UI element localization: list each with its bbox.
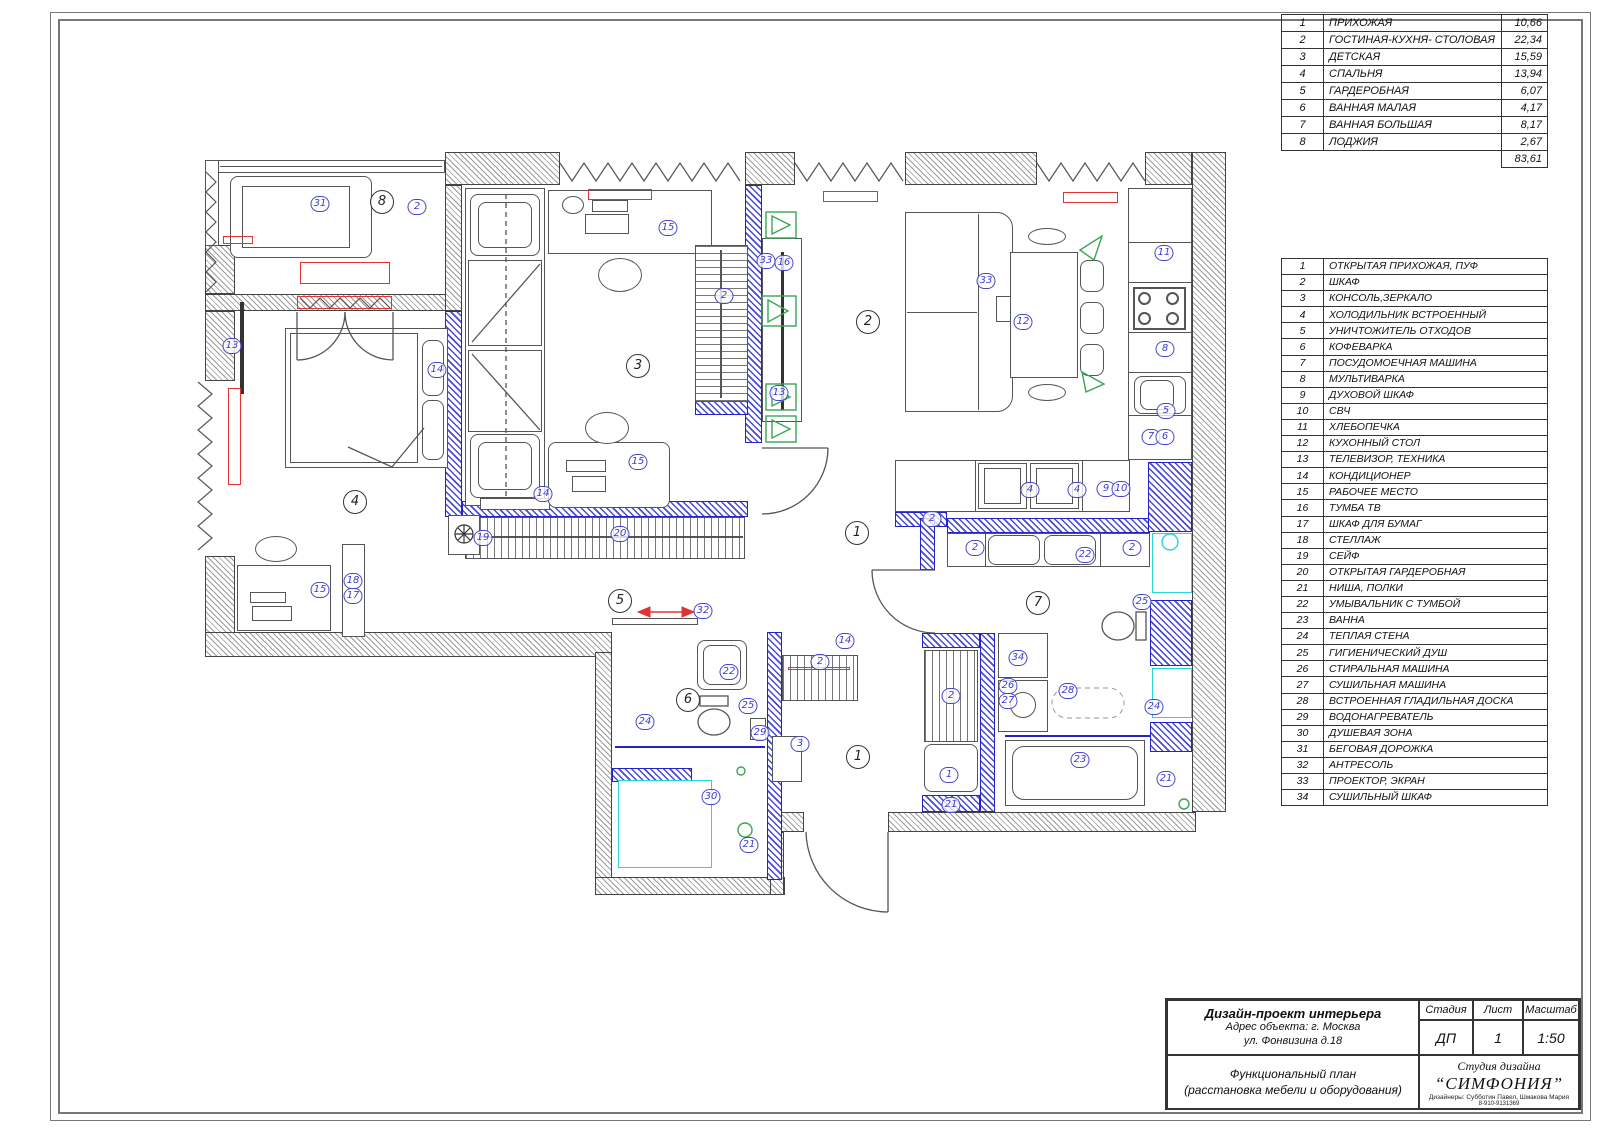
sofa-seat-line — [907, 312, 977, 313]
drawing-name-line1: Функциональный план — [1230, 1067, 1356, 1083]
room-name: ЛОДЖИЯ — [1324, 134, 1502, 151]
legend-num: 24 — [1282, 629, 1324, 645]
room-num: 7 — [1282, 117, 1324, 134]
room-name: ГОСТИНАЯ-КУХНЯ- СТОЛОВАЯ — [1324, 32, 1502, 49]
monitor — [585, 214, 629, 234]
wall-partition — [695, 400, 748, 415]
radiator — [228, 388, 241, 485]
legend-name: КОНСОЛЬ,ЗЕРКАЛО — [1324, 291, 1548, 307]
wall-partition — [1150, 722, 1192, 752]
counter-divider — [985, 533, 986, 567]
legend-row: 22УМЫВАЛЬНИК С ТУМБОЙ — [1282, 596, 1548, 612]
legend-row: 26СТИРАЛЬНАЯ МАШИНА — [1282, 661, 1548, 677]
scale-header-cell: Масштаб — [1523, 1000, 1579, 1020]
legend-name: СУШИЛЬНЫЙ ШКАФ — [1324, 790, 1548, 806]
item-label-14: 14 — [534, 486, 553, 502]
keyboard — [252, 606, 292, 621]
dining-chair — [1080, 260, 1104, 292]
legend-num: 27 — [1282, 677, 1324, 693]
legend-table: 1ОТКРЫТАЯ ПРИХОЖАЯ, ПУФ2ШКАФ3КОНСОЛЬ,ЗЕР… — [1281, 258, 1548, 806]
legend-name: РАБОЧЕЕ МЕСТО — [1324, 484, 1548, 500]
monitor — [566, 460, 606, 472]
legend-row: 3КОНСОЛЬ,ЗЕРКАЛО — [1282, 291, 1548, 307]
item-label-4: 4 — [1021, 482, 1040, 498]
room-table-row: 4СПАЛЬНЯ13,94 — [1282, 66, 1548, 83]
legend-row: 29ВОДОНАГРЕВАТЕЛЬ — [1282, 709, 1548, 725]
room-name: ВАННАЯ БОЛЬШАЯ — [1324, 117, 1502, 134]
wall-segment — [745, 152, 795, 185]
radiator — [1063, 192, 1118, 203]
item-label-29: 29 — [751, 725, 770, 741]
legend-row: 18СТЕЛЛАЖ — [1282, 532, 1548, 548]
sliding-door — [612, 618, 698, 625]
room-number-5: 5 — [608, 589, 632, 613]
legend-name: ТУМБА ТВ — [1324, 500, 1548, 516]
legend-row: 15РАБОЧЕЕ МЕСТО — [1282, 484, 1548, 500]
room-num: 6 — [1282, 100, 1324, 117]
bed-pillow — [422, 400, 444, 460]
legend-num: 20 — [1282, 564, 1324, 580]
legend-num: 16 — [1282, 500, 1324, 516]
item-label-14: 14 — [428, 362, 447, 378]
item-label-2: 2 — [811, 654, 830, 670]
item-label-21: 21 — [1157, 771, 1176, 787]
monitor — [250, 592, 286, 603]
legend-row: 1ОТКРЫТАЯ ПРИХОЖАЯ, ПУФ — [1282, 259, 1548, 275]
legend-row: 7ПОСУДОМОЕЧНАЯ МАШИНА — [1282, 355, 1548, 371]
legend-name: СЕЙФ — [1324, 548, 1548, 564]
project-address-line2: ул. Фонвизина д.18 — [1244, 1035, 1342, 1049]
item-label-13: 13 — [770, 385, 789, 401]
room-area: 15,59 — [1502, 49, 1548, 66]
dining-chair — [1080, 344, 1104, 376]
legend-name: БЕГОВАЯ ДОРОЖКА — [1324, 741, 1548, 757]
room-area: 8,17 — [1502, 117, 1548, 134]
room-num: 8 — [1282, 134, 1324, 151]
legend-name: УМЫВАЛЬНИК С ТУМБОЙ — [1324, 596, 1548, 612]
stove-burner — [1138, 312, 1151, 325]
legend-row: 34СУШИЛЬНЫЙ ШКАФ — [1282, 790, 1548, 806]
legend-name: СТЕЛЛАЖ — [1324, 532, 1548, 548]
legend-num: 1 — [1282, 259, 1324, 275]
legend-row: 4ХОЛОДИЛЬНИК ВСТРОЕННЫЙ — [1282, 307, 1548, 323]
wall-segment — [445, 152, 560, 185]
counter-divider — [1100, 533, 1101, 567]
open-wardrobe — [465, 517, 745, 559]
legend-name: ВОДОНАГРЕВАТЕЛЬ — [1324, 709, 1548, 725]
wall-partition — [1148, 462, 1192, 532]
item-label-20: 20 — [611, 526, 630, 542]
room-name: СПАЛЬНЯ — [1324, 66, 1502, 83]
studio-name: “СИМФОНИЯ” — [1435, 1074, 1563, 1094]
glazing-line — [220, 166, 442, 167]
radiator — [588, 189, 652, 200]
wall-segment — [888, 812, 1196, 832]
room-area: 4,17 — [1502, 100, 1548, 117]
item-label-3: 3 — [791, 736, 810, 752]
room-table-row: 1ПРИХОЖАЯ10,66 — [1282, 15, 1548, 32]
room-table-row: 5ГАРДЕРОБНАЯ6,07 — [1282, 83, 1548, 100]
legend-name: ВАННА — [1324, 613, 1548, 629]
legend-name: ОТКРЫТАЯ ПРИХОЖАЯ, ПУФ — [1324, 259, 1548, 275]
room-num: 5 — [1282, 83, 1324, 100]
empty-cell — [1282, 151, 1324, 168]
wall-segment — [595, 877, 785, 895]
item-label-32: 32 — [694, 603, 713, 619]
window-zigzag — [795, 163, 903, 181]
item-label-30: 30 — [702, 789, 721, 805]
legend-num: 32 — [1282, 757, 1324, 773]
child-bed — [468, 260, 542, 346]
item-label-19: 19 — [474, 530, 493, 546]
room-number-6: 6 — [676, 688, 700, 712]
radiator — [823, 191, 878, 202]
room-number-8: 8 — [370, 190, 394, 214]
counter-divider — [1128, 332, 1192, 333]
item-label-2: 2 — [1123, 540, 1142, 556]
project-info-cell: Дизайн-проект интерьера Адрес объекта: г… — [1167, 1000, 1419, 1055]
room-number-4: 4 — [343, 490, 367, 514]
legend-name: ДУШЕВАЯ ЗОНА — [1324, 725, 1548, 741]
legend-row: 11ХЛЕБОПЕЧКА — [1282, 419, 1548, 435]
glass-screen — [615, 746, 765, 748]
desk-children-bottom — [548, 442, 670, 508]
legend-row: 23ВАННА — [1282, 613, 1548, 629]
chair — [598, 258, 642, 292]
title-block: Дизайн-проект интерьера Адрес объекта: г… — [1165, 998, 1581, 1110]
item-label-33: 33 — [977, 273, 996, 289]
legend-name: ПРОЕКТОР, ЭКРАН — [1324, 774, 1548, 790]
legend-num: 19 — [1282, 548, 1324, 564]
wardrobe-rod — [467, 536, 743, 538]
stool — [1028, 228, 1066, 245]
studio-cell: Студия дизайна “СИМФОНИЯ” Дизайнеры: Суб… — [1419, 1055, 1579, 1110]
legend-num: 11 — [1282, 419, 1324, 435]
legend-row: 32АНТРЕСОЛЬ — [1282, 757, 1548, 773]
counter-divider — [1128, 242, 1192, 243]
legend-row: 16ТУМБА ТВ — [1282, 500, 1548, 516]
room-number-2: 2 — [856, 310, 880, 334]
legend-num: 33 — [1282, 774, 1324, 790]
stove-burner — [1166, 312, 1179, 325]
item-label-28: 28 — [1059, 683, 1078, 699]
legend-name: ХОЛОДИЛЬНИК ВСТРОЕННЫЙ — [1324, 307, 1548, 323]
item-label-27: 27 — [999, 693, 1018, 709]
armchair-cushion — [478, 442, 532, 490]
room-num: 2 — [1282, 32, 1324, 49]
legend-num: 22 — [1282, 596, 1324, 612]
legend-num: 25 — [1282, 645, 1324, 661]
sliding-door-arrows — [638, 607, 694, 617]
room-name: ВАННАЯ МАЛАЯ — [1324, 100, 1502, 117]
legend-name: НИША, ПОЛКИ — [1324, 580, 1548, 596]
room-area-table: 1ПРИХОЖАЯ10,662ГОСТИНАЯ-КУХНЯ- СТОЛОВАЯ2… — [1281, 14, 1548, 168]
legend-row: 9ДУХОВОЙ ШКАФ — [1282, 387, 1548, 403]
legend-num: 2 — [1282, 275, 1324, 291]
treadmill-belt — [242, 186, 350, 248]
legend-num: 29 — [1282, 709, 1324, 725]
legend-num: 28 — [1282, 693, 1324, 709]
legend-name: АНТРЕСОЛЬ — [1324, 757, 1548, 773]
legend-name: КОФЕВАРКА — [1324, 339, 1548, 355]
dining-chair — [1080, 302, 1104, 334]
built-in-fridge-inner — [984, 468, 1021, 504]
legend-name: УНИЧТОЖИТЕЛЬ ОТХОДОВ — [1324, 323, 1548, 339]
legend-num: 6 — [1282, 339, 1324, 355]
legend-name: КОНДИЦИОНЕР — [1324, 468, 1548, 484]
room-area: 2,67 — [1502, 134, 1548, 151]
item-label-25: 25 — [1133, 594, 1152, 610]
stage-value-cell: ДП — [1419, 1020, 1473, 1055]
item-label-34: 34 — [1009, 650, 1028, 666]
room-num: 1 — [1282, 15, 1324, 32]
room-table-row: 8ЛОДЖИЯ2,67 — [1282, 134, 1548, 151]
keyboard — [592, 200, 628, 212]
bed-mattress — [290, 333, 418, 463]
loggia-glazing-left — [205, 160, 219, 246]
item-label-24: 24 — [636, 714, 655, 730]
legend-row: 27СУШИЛЬНАЯ МАШИНА — [1282, 677, 1548, 693]
stool — [1028, 384, 1066, 401]
legend-num: 4 — [1282, 307, 1324, 323]
item-label-1: 1 — [940, 767, 959, 783]
legend-name: ШКАФ ДЛЯ БУМАГ — [1324, 516, 1548, 532]
armchair-cushion — [478, 202, 532, 248]
legend-num: 26 — [1282, 661, 1324, 677]
legend-row: 25ГИГИЕНИЧЕСКИЙ ДУШ — [1282, 645, 1548, 661]
item-label-33: 33 — [757, 253, 776, 269]
legend-name: ТЕЛЕВИЗОР, ТЕХНИКА — [1324, 452, 1548, 468]
room-area: 6,07 — [1502, 83, 1548, 100]
item-label-21: 21 — [942, 797, 961, 813]
legend-num: 31 — [1282, 741, 1324, 757]
item-label-2: 2 — [923, 511, 942, 527]
stove-burner — [1166, 292, 1179, 305]
legend-name: ШКАФ — [1324, 275, 1548, 291]
legend-name: ВСТРОЕННАЯ ГЛАДИЛЬНАЯ ДОСКА — [1324, 693, 1548, 709]
room-table-row: 7ВАННАЯ БОЛЬШАЯ8,17 — [1282, 117, 1548, 134]
studio-phone: 8-910-9131369 — [1479, 1101, 1520, 1107]
legend-row: 10СВЧ — [1282, 403, 1548, 419]
wall-segment — [1145, 152, 1192, 185]
item-label-13: 13 — [223, 338, 242, 354]
washbasin — [988, 535, 1040, 565]
balcony-door — [297, 296, 392, 309]
wall-segment — [445, 185, 462, 311]
cabinet-divider — [975, 460, 976, 512]
wall-partition — [922, 633, 980, 648]
legend-row: 31БЕГОВАЯ ДОРОЖКА — [1282, 741, 1548, 757]
legend-num: 23 — [1282, 613, 1324, 629]
radiator — [223, 236, 253, 244]
chair — [255, 536, 297, 562]
item-label-2: 2 — [408, 199, 427, 215]
legend-name: СУШИЛЬНАЯ МАШИНА — [1324, 677, 1548, 693]
window-zigzag — [1037, 163, 1145, 181]
wall-partition — [980, 633, 995, 812]
legend-name: ТЕПЛАЯ СТЕНА — [1324, 629, 1548, 645]
counter-divider — [1128, 282, 1192, 283]
legend-row: 24ТЕПЛАЯ СТЕНА — [1282, 629, 1548, 645]
room-number-3: 3 — [626, 354, 650, 378]
room-number-1: 1 — [845, 521, 869, 545]
stage-header-cell: Стадия — [1419, 1000, 1473, 1020]
wardrobe-rod — [720, 250, 722, 398]
room-area: 10,66 — [1502, 15, 1548, 32]
legend-row: 33ПРОЕКТОР, ЭКРАН — [1282, 774, 1548, 790]
item-label-4: 4 — [1068, 482, 1087, 498]
legend-row: 13ТЕЛЕВИЗОР, ТЕХНИКА — [1282, 452, 1548, 468]
legend-name: ХЛЕБОПЕЧКА — [1324, 419, 1548, 435]
legend-row: 28ВСТРОЕННАЯ ГЛАДИЛЬНАЯ ДОСКА — [1282, 693, 1548, 709]
legend-num: 7 — [1282, 355, 1324, 371]
item-label-25: 25 — [739, 698, 758, 714]
legend-name: КУХОННЫЙ СТОЛ — [1324, 436, 1548, 452]
item-label-8: 8 — [1156, 341, 1175, 357]
legend-row: 14КОНДИЦИОНЕР — [1282, 468, 1548, 484]
item-label-15: 15 — [659, 220, 678, 236]
item-label-12: 12 — [1014, 314, 1033, 330]
item-label-17: 17 — [344, 588, 363, 604]
room-number-7: 7 — [1026, 591, 1050, 615]
item-label-23: 23 — [1071, 752, 1090, 768]
bathroom-cabinet — [1152, 533, 1192, 593]
legend-name: ПОСУДОМОЕЧНАЯ МАШИНА — [1324, 355, 1548, 371]
legend-row: 8МУЛЬТИВАРКА — [1282, 371, 1548, 387]
floor-plan-sheet: { "room_table": { "rows": [ {"num":"1","… — [0, 0, 1600, 1131]
legend-num: 12 — [1282, 436, 1324, 452]
legend-row: 6КОФЕВАРКА — [1282, 339, 1548, 355]
legend-row: 20ОТКРЫТАЯ ГАРДЕРОБНАЯ — [1282, 564, 1548, 580]
item-label-24: 24 — [1145, 699, 1164, 715]
room-name: ПРИХОЖАЯ — [1324, 15, 1502, 32]
drawing-name-line2: (расстановка мебели и оборудования) — [1184, 1083, 1402, 1099]
legend-num: 15 — [1282, 484, 1324, 500]
legend-num: 14 — [1282, 468, 1324, 484]
room-number-1: 1 — [846, 745, 870, 769]
legend-num: 34 — [1282, 790, 1324, 806]
legend-num: 17 — [1282, 516, 1324, 532]
drawing-name-cell: Функциональный план (расстановка мебели … — [1167, 1055, 1419, 1110]
item-label-31: 31 — [311, 196, 330, 212]
shower-tray — [618, 780, 712, 868]
wall-segment — [1192, 152, 1226, 812]
room-area: 22,34 — [1502, 32, 1548, 49]
legend-row: 5УНИЧТОЖИТЕЛЬ ОТХОДОВ — [1282, 323, 1548, 339]
legend-num: 10 — [1282, 403, 1324, 419]
legend-num: 18 — [1282, 532, 1324, 548]
window-zigzag — [198, 382, 212, 550]
item-label-5: 5 — [1157, 403, 1176, 419]
legend-num: 3 — [1282, 291, 1324, 307]
item-label-14: 14 — [836, 633, 855, 649]
legend-row: 12КУХОННЫЙ СТОЛ — [1282, 436, 1548, 452]
legend-num: 13 — [1282, 452, 1324, 468]
sheet-value-cell: 1 — [1473, 1020, 1523, 1055]
wall-segment — [905, 152, 1037, 185]
room-table-row: 3ДЕТСКАЯ15,59 — [1282, 49, 1548, 66]
item-label-10: 10 — [1112, 481, 1131, 497]
room-table-total-row: 83,61 — [1282, 151, 1548, 168]
legend-num: 5 — [1282, 323, 1324, 339]
item-label-15: 15 — [629, 454, 648, 470]
room-area: 13,94 — [1502, 66, 1548, 83]
legend-num: 9 — [1282, 387, 1324, 403]
item-label-2: 2 — [966, 540, 985, 556]
item-label-15: 15 — [311, 582, 330, 598]
item-label-6: 6 — [1156, 429, 1175, 445]
item-label-11: 11 — [1155, 245, 1174, 261]
wall-segment — [205, 632, 612, 657]
legend-row: 30ДУШЕВАЯ ЗОНА — [1282, 725, 1548, 741]
glass-screen — [1005, 735, 1150, 737]
legend-name: ГИГИЕНИЧЕСКИЙ ДУШ — [1324, 645, 1548, 661]
counter-divider — [1128, 372, 1192, 373]
room-num: 4 — [1282, 66, 1324, 83]
radiator — [300, 262, 390, 284]
item-label-18: 18 — [344, 573, 363, 589]
room-name: ДЕТСКАЯ — [1324, 49, 1502, 66]
legend-row: 2ШКАФ — [1282, 275, 1548, 291]
studio-designers: Дизайнеры: Субботин Павел, Шмакова Мария — [1429, 1094, 1569, 1101]
room-table-row: 6ВАННАЯ МАЛАЯ4,17 — [1282, 100, 1548, 117]
legend-num: 8 — [1282, 371, 1324, 387]
legend-name: СТИРАЛЬНАЯ МАШИНА — [1324, 661, 1548, 677]
legend-num: 30 — [1282, 725, 1324, 741]
item-label-2: 2 — [715, 288, 734, 304]
project-address-line1: Адрес объекта: г. Москва — [1226, 1021, 1361, 1035]
scale-value-cell: 1:50 — [1523, 1020, 1579, 1055]
item-label-2: 2 — [942, 688, 961, 704]
room-num: 3 — [1282, 49, 1324, 66]
legend-name: МУЛЬТИВАРКА — [1324, 371, 1548, 387]
room-name: ГАРДЕРОБНАЯ — [1324, 83, 1502, 100]
room-table-row: 2ГОСТИНАЯ-КУХНЯ- СТОЛОВАЯ22,34 — [1282, 32, 1548, 49]
item-label-16: 16 — [775, 255, 794, 271]
stove-burner — [1138, 292, 1151, 305]
wall-segment — [595, 652, 612, 895]
chair — [585, 412, 629, 444]
legend-num: 21 — [1282, 580, 1324, 596]
sheet-header-cell: Лист — [1473, 1000, 1523, 1020]
item-label-22: 22 — [1076, 547, 1095, 563]
child-bed — [468, 350, 542, 432]
wall-partition — [1150, 600, 1192, 666]
legend-name: СВЧ — [1324, 403, 1548, 419]
total-area: 83,61 — [1502, 151, 1548, 168]
legend-row: 21НИША, ПОЛКИ — [1282, 580, 1548, 596]
legend-row: 17ШКАФ ДЛЯ БУМАГ — [1282, 516, 1548, 532]
project-title: Дизайн-проект интерьера — [1205, 1006, 1382, 1021]
legend-row: 19СЕЙФ — [1282, 548, 1548, 564]
studio-type: Студия дизайна — [1457, 1059, 1540, 1074]
desk-lamp — [562, 196, 584, 214]
item-label-21: 21 — [740, 837, 759, 853]
sofa-back-line — [978, 214, 979, 410]
legend-name: ДУХОВОЙ ШКАФ — [1324, 387, 1548, 403]
empty-cell — [1324, 151, 1502, 168]
window-zigzag — [560, 163, 740, 181]
wall-partition — [947, 518, 1150, 533]
legend-name: ОТКРЫТАЯ ГАРДЕРОБНАЯ — [1324, 564, 1548, 580]
keyboard — [572, 476, 606, 492]
item-label-26: 26 — [999, 678, 1018, 694]
item-label-22: 22 — [720, 664, 739, 680]
